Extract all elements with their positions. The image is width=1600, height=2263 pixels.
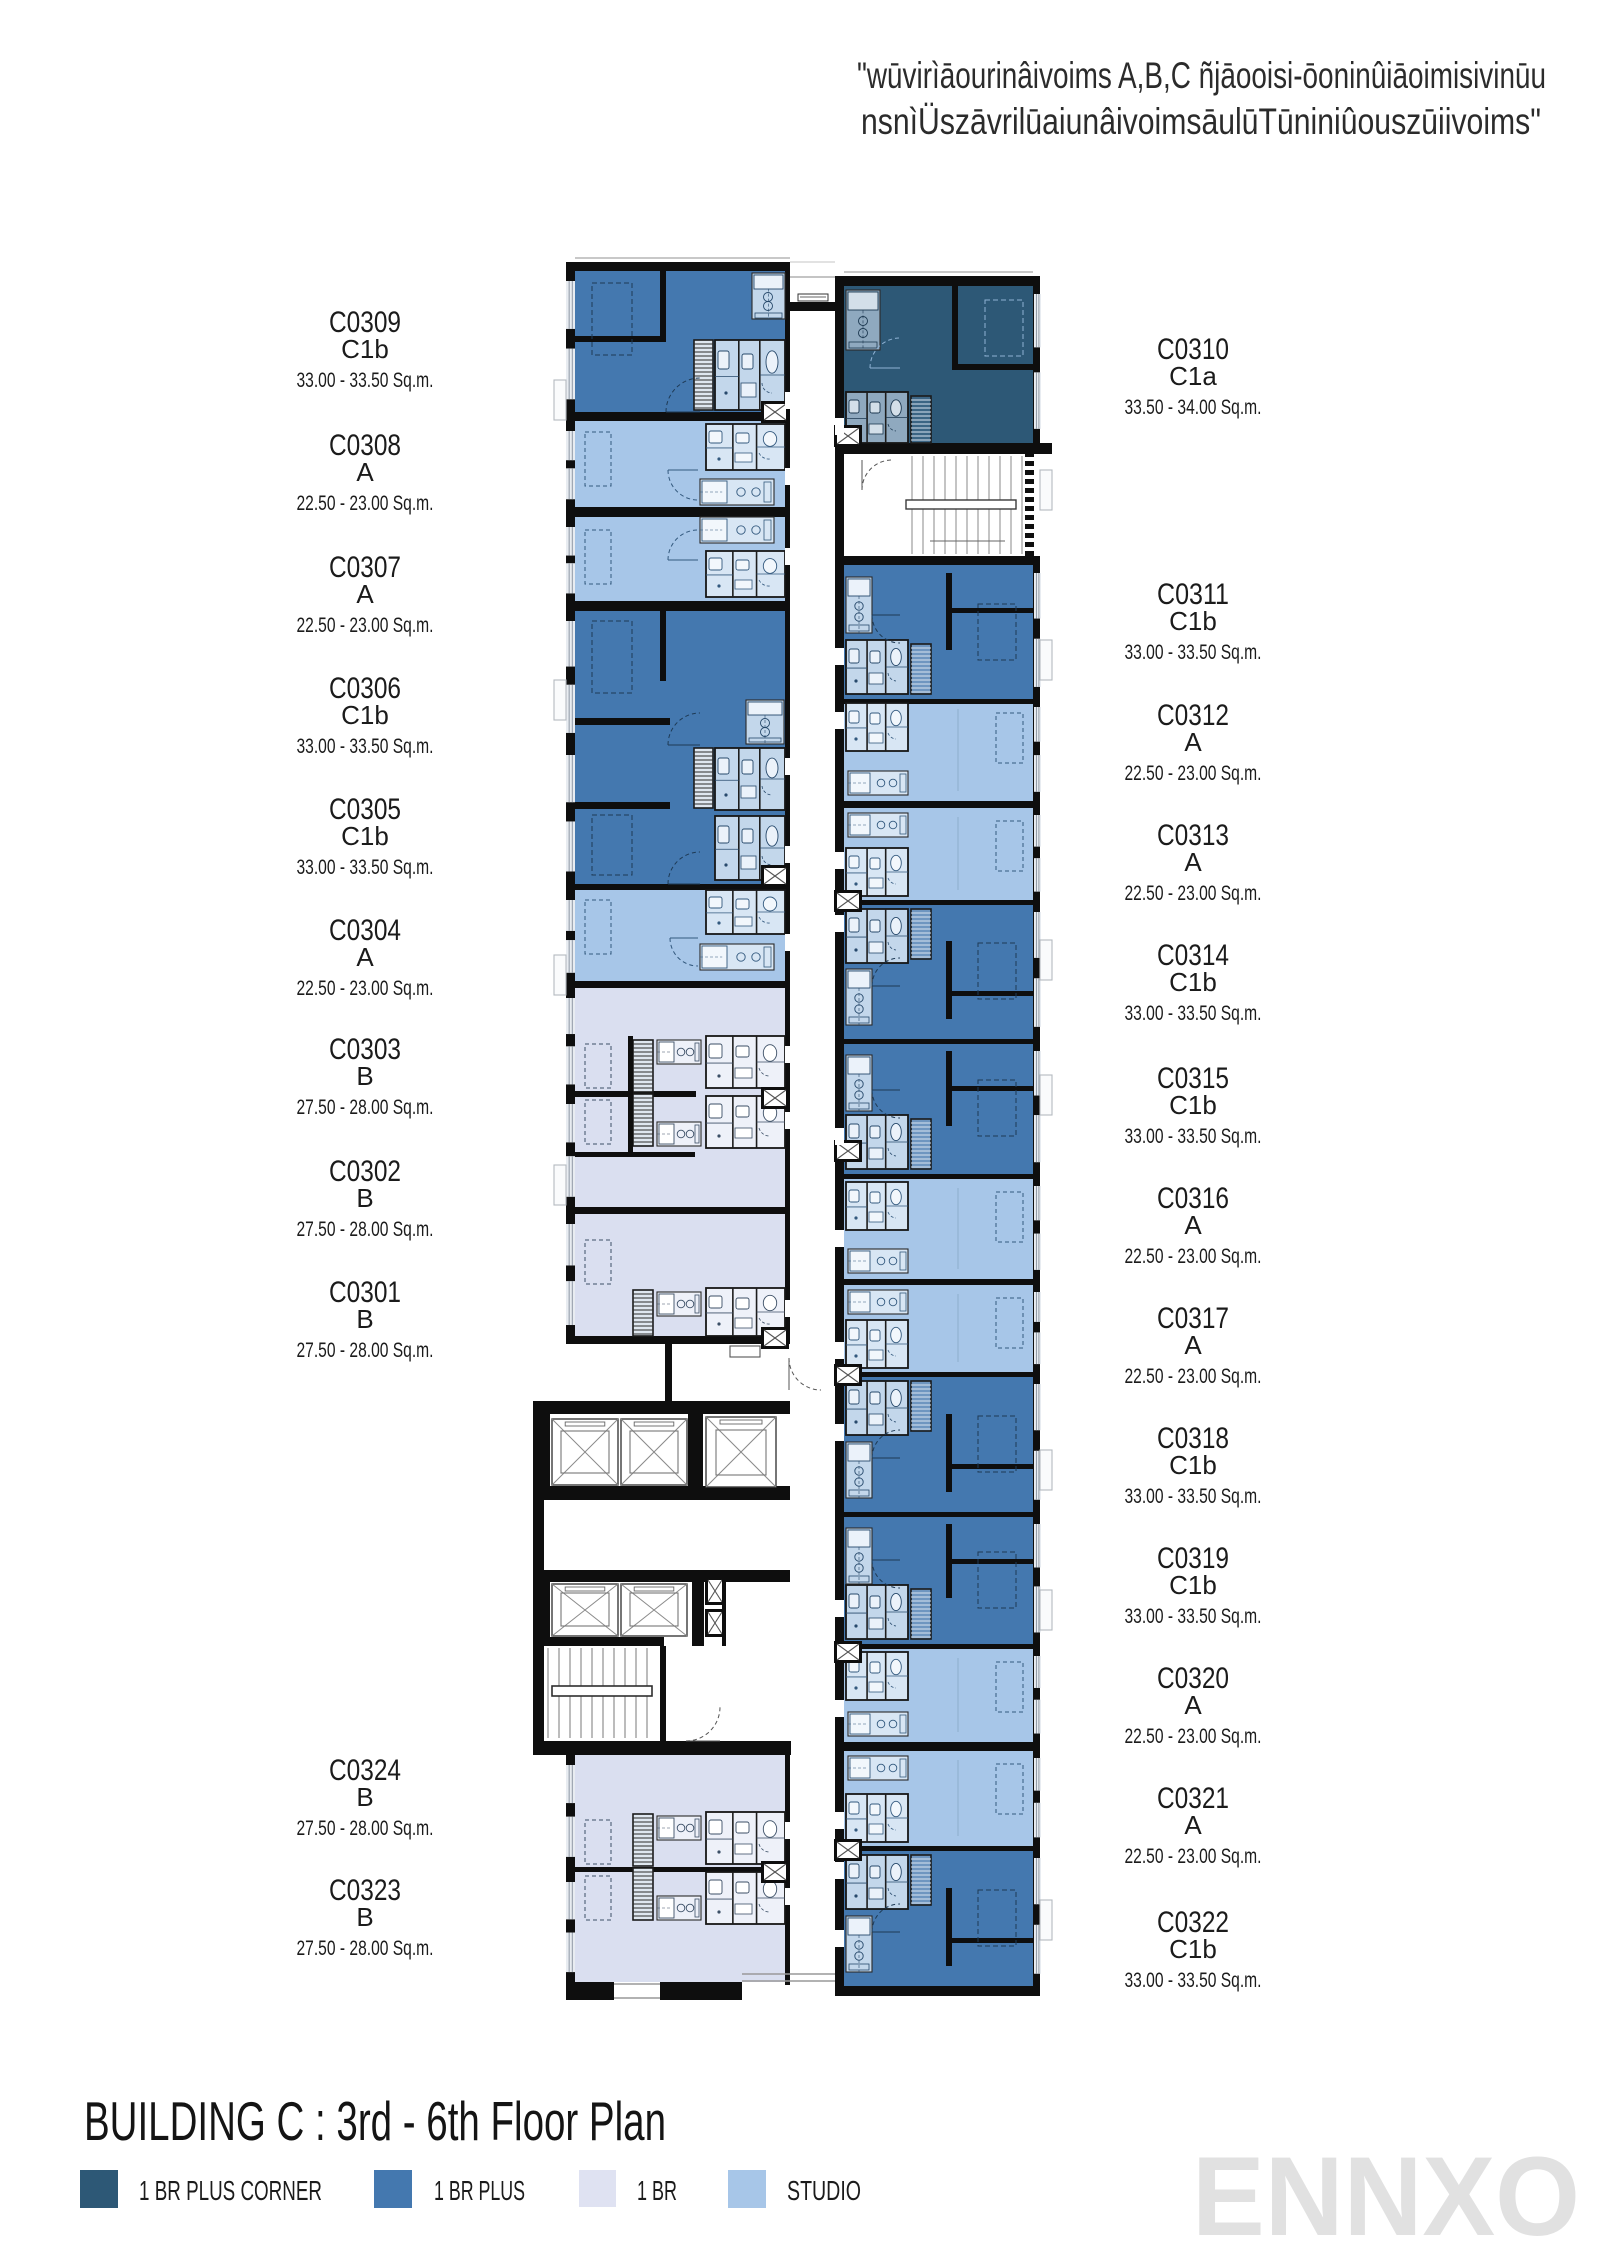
svg-text:"wūvirìāourinâivoims A,B,C ñjā: "wūvirìāourinâivoims A,B,C ñjāooisi-ōoni… — [857, 55, 1546, 96]
svg-text:33.00 - 33.50 Sq.m.: 33.00 - 33.50 Sq.m. — [1125, 640, 1262, 664]
svg-text:22.50 - 23.00 Sq.m.: 22.50 - 23.00 Sq.m. — [1125, 881, 1262, 905]
svg-text:B: B — [356, 1782, 373, 1812]
svg-text:C1b: C1b — [1169, 1570, 1217, 1600]
svg-text:22.50 - 23.00 Sq.m.: 22.50 - 23.00 Sq.m. — [1125, 1364, 1262, 1388]
svg-text:33.00 - 33.50 Sq.m.: 33.00 - 33.50 Sq.m. — [297, 734, 434, 758]
svg-text:C1b: C1b — [341, 334, 389, 364]
svg-text:22.50 - 23.00 Sq.m.: 22.50 - 23.00 Sq.m. — [297, 976, 434, 1000]
svg-text:C1b: C1b — [341, 700, 389, 730]
svg-text:22.50 - 23.00 Sq.m.: 22.50 - 23.00 Sq.m. — [1125, 1844, 1262, 1868]
svg-text:33.00 - 33.50 Sq.m.: 33.00 - 33.50 Sq.m. — [1125, 1484, 1262, 1508]
svg-text:C1b: C1b — [1169, 606, 1217, 636]
svg-text:ENNXO: ENNXO — [1192, 2134, 1580, 2259]
svg-text:A: A — [1184, 1810, 1202, 1840]
svg-text:33.00 - 33.50 Sq.m.: 33.00 - 33.50 Sq.m. — [297, 855, 434, 879]
svg-text:22.50 - 23.00 Sq.m.: 22.50 - 23.00 Sq.m. — [1125, 761, 1262, 785]
svg-text:B: B — [356, 1061, 373, 1091]
svg-text:B: B — [356, 1183, 373, 1213]
svg-text:STUDIO: STUDIO — [787, 2175, 861, 2206]
svg-text:22.50 - 23.00 Sq.m.: 22.50 - 23.00 Sq.m. — [1125, 1244, 1262, 1268]
svg-text:C1b: C1b — [1169, 1934, 1217, 1964]
svg-text:27.50 - 28.00 Sq.m.: 27.50 - 28.00 Sq.m. — [297, 1095, 434, 1119]
svg-text:33.00 - 33.50 Sq.m.: 33.00 - 33.50 Sq.m. — [297, 368, 434, 392]
svg-text:22.50 - 23.00 Sq.m.: 22.50 - 23.00 Sq.m. — [1125, 1724, 1262, 1748]
svg-text:27.50 - 28.00 Sq.m.: 27.50 - 28.00 Sq.m. — [297, 1217, 434, 1241]
svg-text:C1b: C1b — [1169, 967, 1217, 997]
svg-text:22.50 - 23.00 Sq.m.: 22.50 - 23.00 Sq.m. — [297, 613, 434, 637]
svg-text:A: A — [1184, 847, 1202, 877]
svg-text:nsnìÜszāvrilūaiunâivoimsāulūTū: nsnìÜszāvrilūaiunâivoimsāulūTūniniûouszū… — [861, 101, 1541, 142]
svg-text:BUILDING C : 3rd - 6th Floor P: BUILDING C : 3rd - 6th Floor Plan — [84, 2090, 666, 2152]
svg-text:27.50 - 28.00 Sq.m.: 27.50 - 28.00 Sq.m. — [297, 1338, 434, 1362]
svg-text:A: A — [356, 457, 374, 487]
svg-text:1 BR PLUS CORNER: 1 BR PLUS CORNER — [139, 2175, 322, 2206]
svg-text:C1b: C1b — [341, 821, 389, 851]
svg-text:27.50 - 28.00 Sq.m.: 27.50 - 28.00 Sq.m. — [297, 1816, 434, 1840]
svg-text:A: A — [1184, 1330, 1202, 1360]
svg-text:33.00 - 33.50 Sq.m.: 33.00 - 33.50 Sq.m. — [1125, 1604, 1262, 1628]
svg-text:1 BR PLUS: 1 BR PLUS — [434, 2175, 525, 2206]
svg-text:A: A — [1184, 1210, 1202, 1240]
svg-text:C1a: C1a — [1169, 361, 1217, 391]
svg-text:A: A — [1184, 1690, 1202, 1720]
svg-text:A: A — [356, 579, 374, 609]
svg-text:C1b: C1b — [1169, 1090, 1217, 1120]
svg-text:A: A — [1184, 727, 1202, 757]
svg-text:33.00 - 33.50 Sq.m.: 33.00 - 33.50 Sq.m. — [1125, 1001, 1262, 1025]
svg-text:B: B — [356, 1902, 373, 1932]
svg-text:C1b: C1b — [1169, 1450, 1217, 1480]
svg-text:27.50 - 28.00 Sq.m.: 27.50 - 28.00 Sq.m. — [297, 1936, 434, 1960]
svg-text:A: A — [356, 942, 374, 972]
svg-text:1 BR: 1 BR — [637, 2175, 677, 2206]
svg-text:B: B — [356, 1304, 373, 1334]
svg-text:33.00 - 33.50 Sq.m.: 33.00 - 33.50 Sq.m. — [1125, 1124, 1262, 1148]
svg-text:22.50 - 23.00 Sq.m.: 22.50 - 23.00 Sq.m. — [297, 491, 434, 515]
svg-text:33.00 - 33.50 Sq.m.: 33.00 - 33.50 Sq.m. — [1125, 1968, 1262, 1992]
svg-text:33.50 - 34.00 Sq.m.: 33.50 - 34.00 Sq.m. — [1125, 395, 1262, 419]
